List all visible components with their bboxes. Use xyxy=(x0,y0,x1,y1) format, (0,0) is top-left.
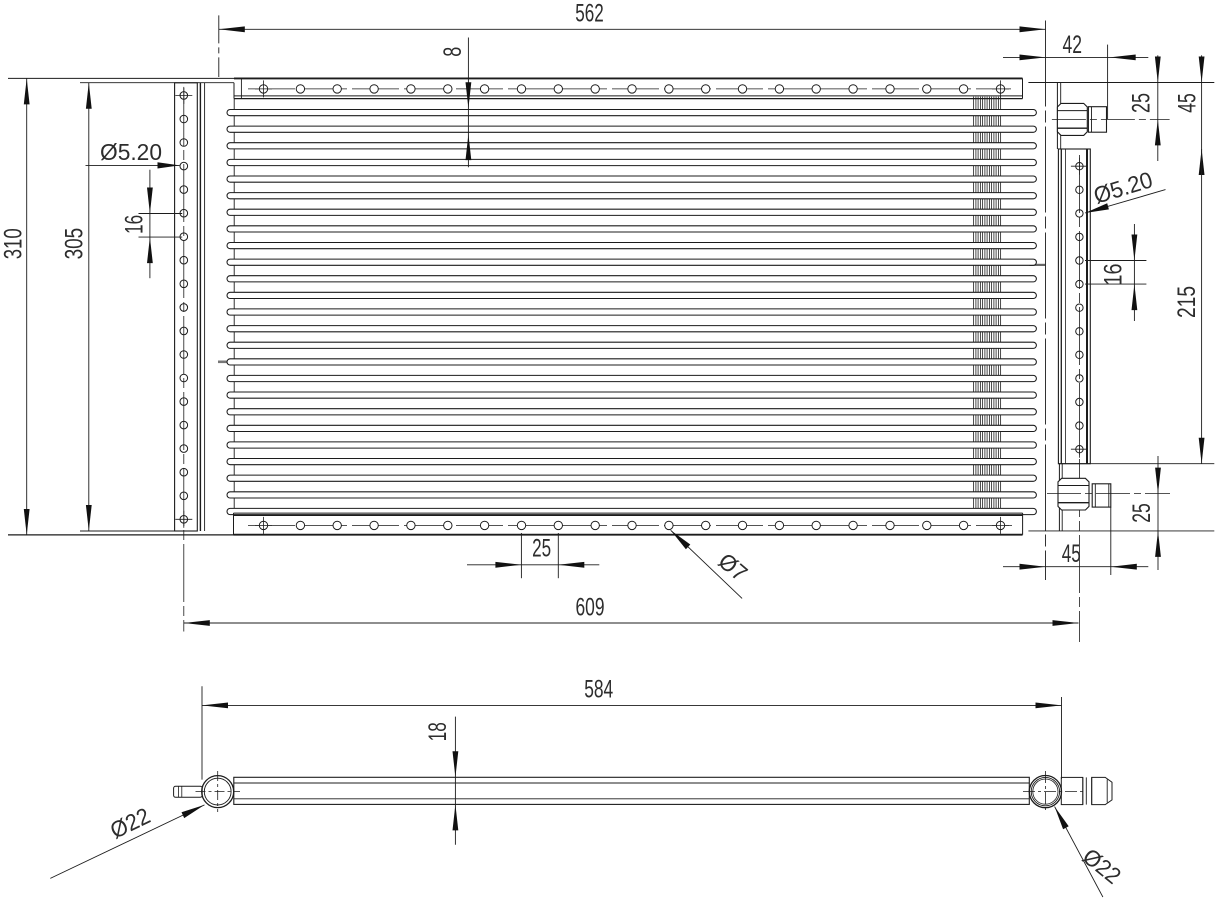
svg-text:Ø5.20: Ø5.20 xyxy=(100,139,162,165)
svg-text:562: 562 xyxy=(575,0,604,27)
svg-text:609: 609 xyxy=(576,594,605,622)
svg-text:25: 25 xyxy=(1128,93,1156,113)
svg-text:305: 305 xyxy=(61,228,89,260)
svg-text:16: 16 xyxy=(1099,264,1127,286)
svg-text:45: 45 xyxy=(1174,93,1202,113)
svg-text:25: 25 xyxy=(532,534,551,562)
svg-text:42: 42 xyxy=(1062,31,1082,59)
svg-text:18: 18 xyxy=(424,722,452,741)
svg-text:45: 45 xyxy=(1062,540,1081,568)
svg-text:16: 16 xyxy=(120,215,148,234)
svg-text:584: 584 xyxy=(584,676,613,704)
svg-text:215: 215 xyxy=(1173,286,1201,318)
svg-text:25: 25 xyxy=(1128,503,1156,523)
svg-text:8: 8 xyxy=(439,47,467,57)
svg-text:310: 310 xyxy=(0,228,28,259)
